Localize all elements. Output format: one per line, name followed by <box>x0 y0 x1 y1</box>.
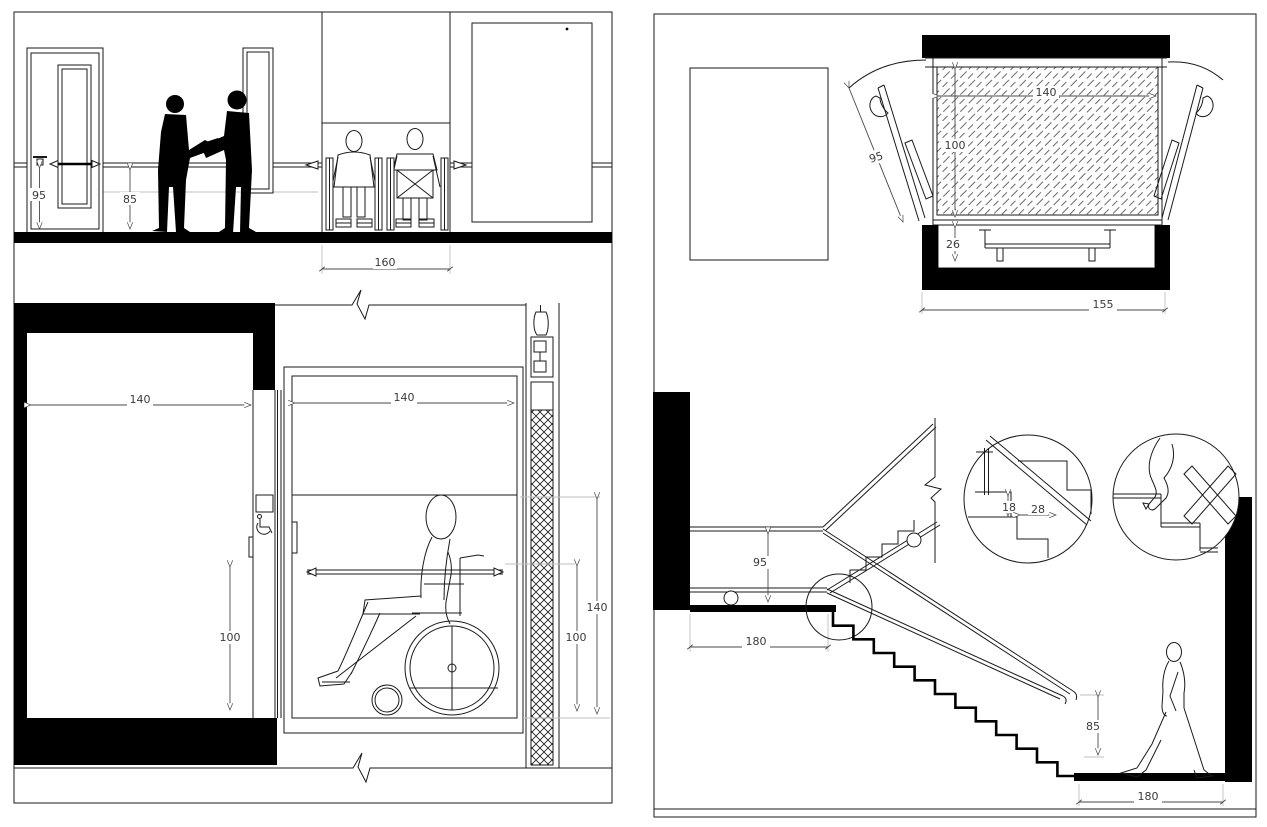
dim-85-stair-label: 85 <box>1086 720 1100 733</box>
dim-95-label: 95 <box>32 189 46 202</box>
dim-180-lower-label: 180 <box>1138 790 1159 803</box>
wheelchair-user-side <box>318 495 499 715</box>
shaft-wall-left <box>14 333 27 718</box>
dim-28-label: 28 <box>1031 503 1045 516</box>
dim-155-label: 155 <box>1093 298 1114 311</box>
dim-handrail-height-left: 100 <box>217 567 243 710</box>
left-panel: 95 85 <box>14 12 612 803</box>
lift-opening <box>322 12 450 232</box>
dim-lower-landing: 180 <box>1079 784 1223 806</box>
shaft-jamb <box>253 333 275 390</box>
plan-sill-pit: 26 <box>922 225 1170 290</box>
corridor-floor <box>14 232 612 243</box>
plan-front-wall <box>922 268 1170 290</box>
wheelchair-user-front-1 <box>326 131 382 231</box>
right-panel: 140 100 95 <box>653 14 1256 817</box>
landing-door <box>249 390 281 718</box>
dim-shaft-width: 140 <box>31 393 251 406</box>
dim-cabin-width: 140 <box>295 391 514 404</box>
lift-section: 140 <box>14 290 612 782</box>
dim-sill-clearance: 26 <box>943 228 963 261</box>
door-handle <box>249 537 253 557</box>
shaft-wall-bottom <box>14 718 277 765</box>
standing-figures-silhouette <box>152 91 256 234</box>
dim-180-upper-label: 180 <box>746 635 767 648</box>
door-knob-left <box>870 96 888 117</box>
dim-overall-width: 155 <box>922 292 1165 314</box>
stair-steps <box>833 609 1078 776</box>
lift-call-panel <box>256 495 273 534</box>
dim-140-shaft-label: 140 <box>130 393 151 406</box>
shaft-lintel <box>14 303 275 333</box>
step-detail-circle: 18 28 <box>964 435 1092 563</box>
cabin-door-handle <box>292 522 297 553</box>
break-line-top <box>275 290 526 319</box>
dim-140-door-label: 140 <box>587 601 608 614</box>
dim-140-plan-label: 140 <box>1036 86 1057 99</box>
dim-95-stair-label: 95 <box>753 556 767 569</box>
corridor-elevation: 95 85 <box>14 12 612 274</box>
dim-clear-width: 160 <box>322 245 450 274</box>
dim-85-label: 85 <box>123 193 137 206</box>
plan-door-right <box>1154 62 1223 220</box>
drawing-canvas: 95 85 <box>0 0 1267 827</box>
cabin-handrail <box>307 568 503 576</box>
walking-figure <box>1121 643 1212 779</box>
mirror-panel <box>472 23 592 222</box>
counterweight-channel <box>526 303 559 768</box>
call-button <box>256 495 273 512</box>
upper-landing-floor <box>690 605 836 612</box>
lift-cabin: 140 <box>284 367 523 733</box>
door-swing-arc-left <box>849 60 926 88</box>
wheelchair-symbol-icon <box>257 515 272 535</box>
technical-drawing-sheet: 95 85 <box>0 0 1267 827</box>
dim-100-left-label: 100 <box>220 631 241 644</box>
corridor-door-left <box>27 48 103 233</box>
dim-door-leaf: 95 <box>849 88 903 222</box>
plan-door-left: 95 <box>849 60 933 222</box>
door-swing-arc-right <box>1168 62 1223 80</box>
dim-160-label: 160 <box>375 256 396 269</box>
handrail-post-ball <box>724 591 738 605</box>
dim-100-plan-label: 100 <box>945 139 966 152</box>
plan-back-wall <box>922 35 1170 58</box>
break-line-upper-flight <box>925 418 941 563</box>
dim-100-right-label: 100 <box>566 631 587 644</box>
adjacent-room <box>690 68 828 260</box>
wrong-step-detail-circle <box>1113 434 1239 560</box>
dim-handrail-height: 85 <box>120 170 140 229</box>
guide-rail-hatch <box>531 410 553 765</box>
plan-cabin: 140 100 <box>933 58 1162 225</box>
stair-section: 95 180 85 <box>653 392 1256 809</box>
wheelchair-user-front-2 <box>387 129 448 231</box>
dim-18-label: 18 <box>1002 501 1016 514</box>
stair-wall-right <box>1225 497 1252 782</box>
dim-26-label: 26 <box>946 238 960 251</box>
lift-plan: 140 100 95 <box>690 35 1223 314</box>
dim-flight-handrail-height: 85 <box>1080 695 1104 757</box>
door-operator <box>979 230 1116 261</box>
dim-upper-landing: 180 <box>690 614 828 652</box>
dim-140-cabin-label: 140 <box>394 391 415 404</box>
mirror-fixing-dot <box>566 28 569 31</box>
upper-flight-steps <box>850 520 914 583</box>
pulley <box>534 312 548 335</box>
handrail-post-ball-2 <box>907 533 921 547</box>
stair-wall-left <box>653 392 690 610</box>
dim-handrail-height-right: 100 140 <box>505 497 610 718</box>
